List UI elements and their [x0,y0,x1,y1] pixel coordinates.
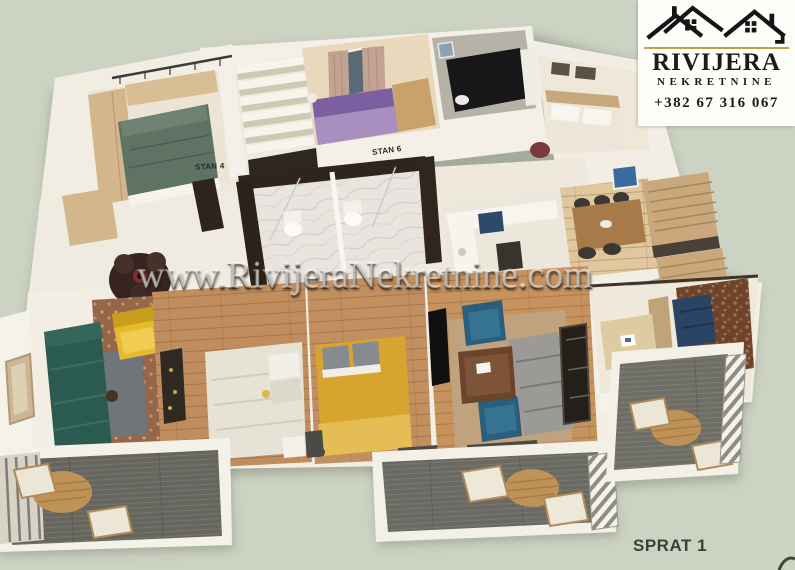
logo-subtitle: NEKRETNINE [638,76,795,89]
balcony-left [0,438,232,552]
twin-houses-icon [642,2,792,46]
logo-phone: +382 67 316 067 [638,95,795,112]
corner-mark [779,558,795,570]
bedroom-mustard [307,274,432,464]
bedroom-purple [302,34,440,145]
floor-plan-image: www.RivijeraNekretnine.com [0,0,795,570]
unit-label-stan-4: STAN 4 [195,161,225,172]
living-room-right [426,266,598,462]
logo-title: RIVIJERA [638,51,795,75]
floor-label: SPRAT 1 [633,536,707,556]
balcony-center [372,440,618,542]
balcony-right [606,342,746,482]
bathroom-dark [432,30,540,120]
agency-logo: RIVIJERA NEKRETNINE +382 67 316 067 [638,0,795,126]
